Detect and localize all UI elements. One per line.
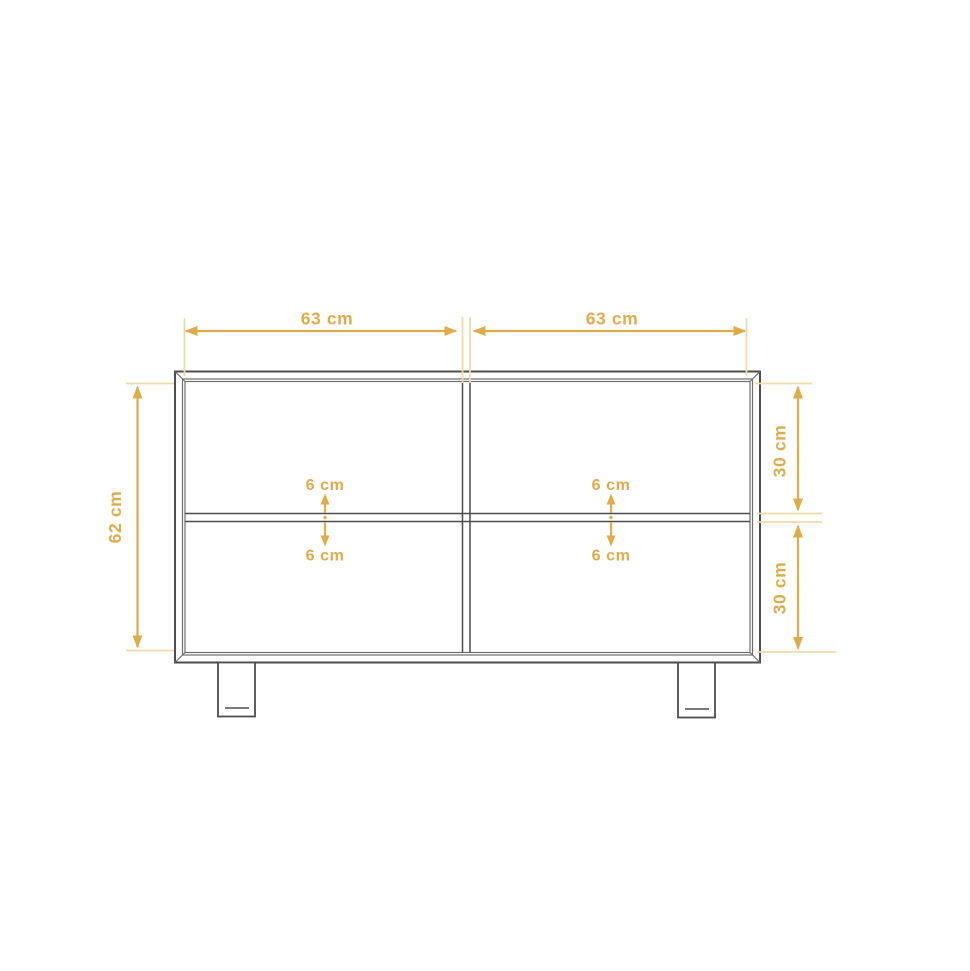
arrow-up-icon (133, 386, 143, 399)
diagram-page: 63 cm 63 cm 62 cm 30 cm 30 cm 6 cm 6 cm … (0, 0, 970, 971)
dimension-arrows (133, 326, 804, 650)
shelf-gap-dot (323, 516, 326, 519)
cabinet-outer-edge (175, 372, 760, 663)
extension-lines (126, 317, 836, 652)
arrow-down-icon (607, 536, 616, 547)
cabinet-inner-edge-a (183, 379, 753, 655)
cabinet-outline (175, 372, 760, 718)
arrow-up-icon (793, 525, 803, 538)
left-leg (218, 663, 255, 717)
dim-label-section-top: 30 cm (770, 425, 790, 478)
dim-label-width-right: 63 cm (586, 309, 639, 329)
dim-label-shelf-gap-top-left: 6 cm (306, 477, 345, 494)
corner-joint-top-right (750, 372, 760, 382)
arrow-left-icon (185, 326, 198, 336)
arrow-down-icon (321, 536, 330, 547)
arrow-right-icon (445, 326, 458, 336)
corner-joint-bottom-right (750, 653, 760, 663)
center-divider (463, 382, 471, 653)
corner-joint-top-left (175, 372, 185, 382)
arrow-up-icon (793, 386, 803, 399)
arrow-left-icon (473, 326, 486, 336)
arrow-up-icon (607, 494, 616, 505)
middle-shelf (185, 514, 750, 522)
arrow-down-icon (793, 499, 803, 512)
arrow-up-icon (321, 494, 330, 505)
corner-joint-bottom-left (175, 653, 185, 663)
dim-label-shelf-gap-bottom-right: 6 cm (592, 548, 631, 565)
dimension-labels: 63 cm 63 cm 62 cm 30 cm 30 cm 6 cm 6 cm … (105, 309, 790, 615)
arrow-down-icon (793, 637, 803, 650)
furniture-dimension-diagram: 63 cm 63 cm 62 cm 30 cm 30 cm 6 cm 6 cm … (0, 0, 970, 971)
shelf-gap-dot (609, 516, 612, 519)
cabinet-inner-edge-b (185, 382, 750, 653)
dim-label-height-total: 62 cm (105, 491, 125, 544)
dim-label-section-bottom: 30 cm (770, 562, 790, 615)
dim-label-shelf-gap-bottom-left: 6 cm (306, 548, 345, 565)
dim-label-width-left: 63 cm (301, 309, 354, 329)
arrow-down-icon (133, 636, 143, 649)
dim-label-shelf-gap-top-right: 6 cm (592, 477, 631, 494)
right-leg (678, 663, 715, 718)
arrow-right-icon (734, 326, 747, 336)
